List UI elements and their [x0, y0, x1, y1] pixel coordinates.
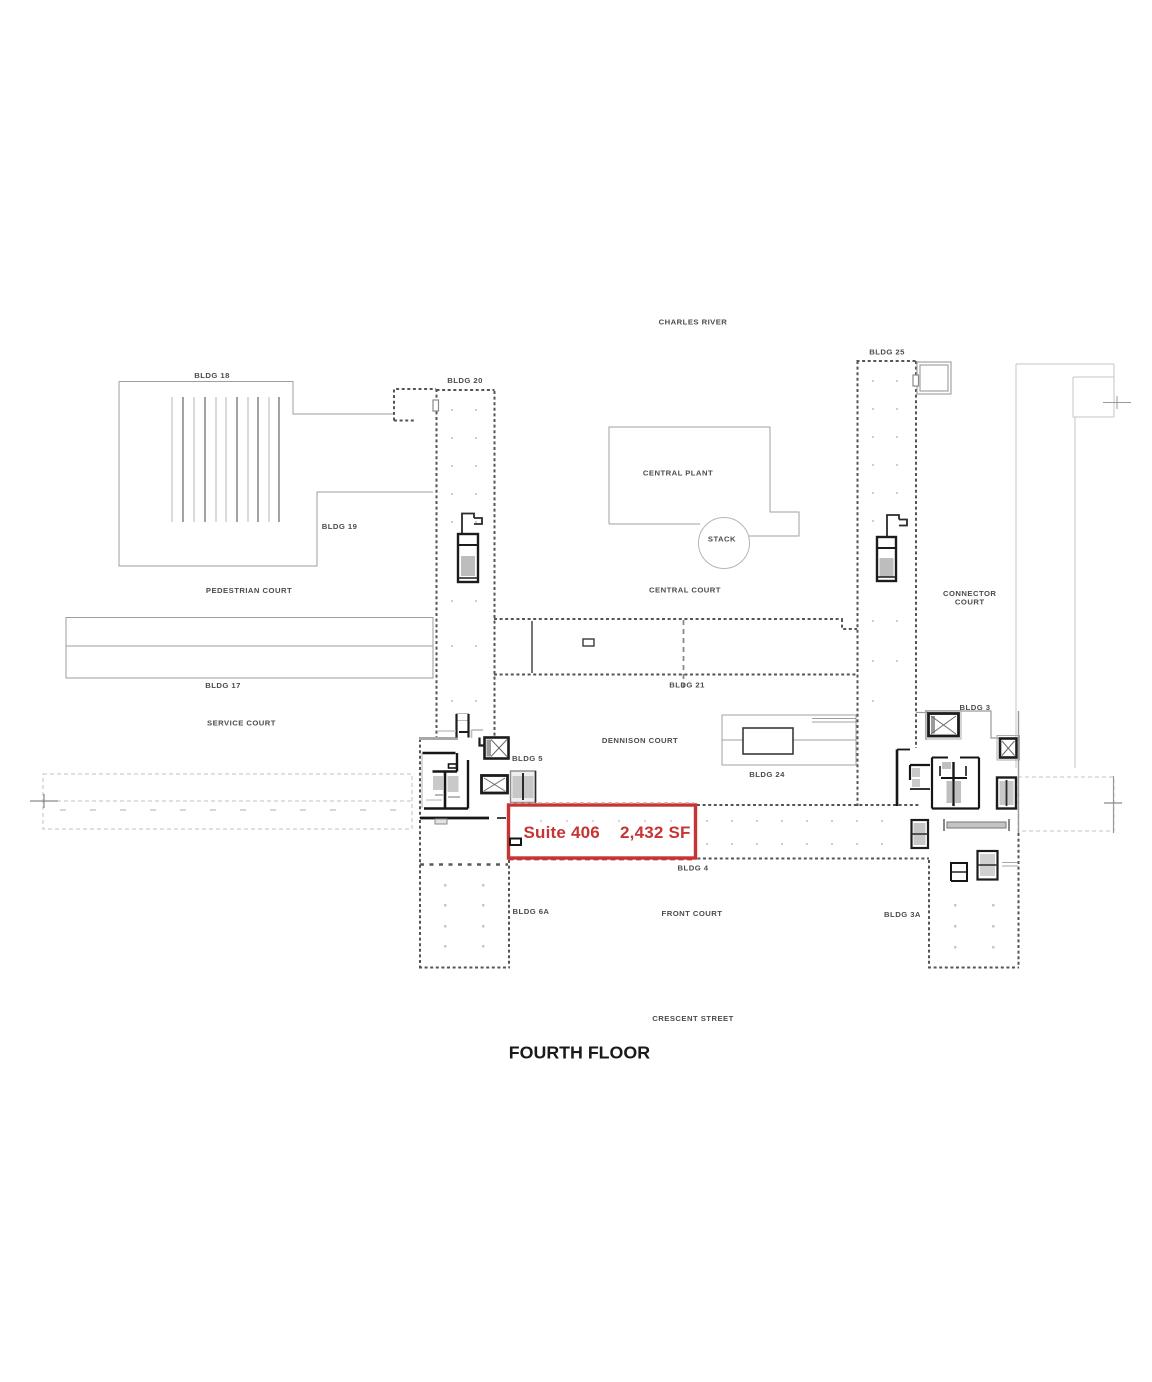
svg-text:BLDG 20: BLDG 20	[447, 376, 483, 385]
svg-text:FRONT COURT: FRONT COURT	[662, 909, 723, 918]
svg-text:SERVICE COURT: SERVICE COURT	[207, 719, 276, 728]
svg-text:2,432 SF: 2,432 SF	[620, 823, 691, 842]
svg-text:DENNISON COURT: DENNISON COURT	[602, 736, 678, 745]
svg-text:COURT: COURT	[955, 598, 985, 607]
svg-text:BLDG 5: BLDG 5	[512, 754, 543, 763]
svg-text:BLDG 24: BLDG 24	[749, 770, 785, 779]
svg-text:FOURTH FLOOR: FOURTH FLOOR	[509, 1043, 650, 1063]
svg-text:BLDG 19: BLDG 19	[322, 522, 358, 531]
svg-text:CHARLES RIVER: CHARLES RIVER	[659, 318, 728, 327]
svg-text:Suite 406: Suite 406	[524, 823, 600, 842]
svg-text:BLDG 25: BLDG 25	[869, 348, 905, 357]
svg-text:CENTRAL COURT: CENTRAL COURT	[649, 586, 721, 595]
svg-text:BLDG 3A: BLDG 3A	[884, 910, 921, 919]
svg-text:BLDG 3: BLDG 3	[960, 703, 991, 712]
svg-text:BLDG 17: BLDG 17	[205, 681, 241, 690]
svg-text:PEDESTRIAN COURT: PEDESTRIAN COURT	[206, 586, 292, 595]
svg-text:BLDG 6A: BLDG 6A	[513, 907, 550, 916]
svg-text:CENTRAL PLANT: CENTRAL PLANT	[643, 469, 713, 478]
svg-text:STACK: STACK	[708, 535, 736, 544]
svg-text:CRESCENT STREET: CRESCENT STREET	[652, 1014, 734, 1023]
svg-text:BLDG 21: BLDG 21	[669, 681, 705, 690]
svg-text:BLDG 4: BLDG 4	[678, 864, 709, 873]
svg-text:BLDG 18: BLDG 18	[194, 371, 230, 380]
